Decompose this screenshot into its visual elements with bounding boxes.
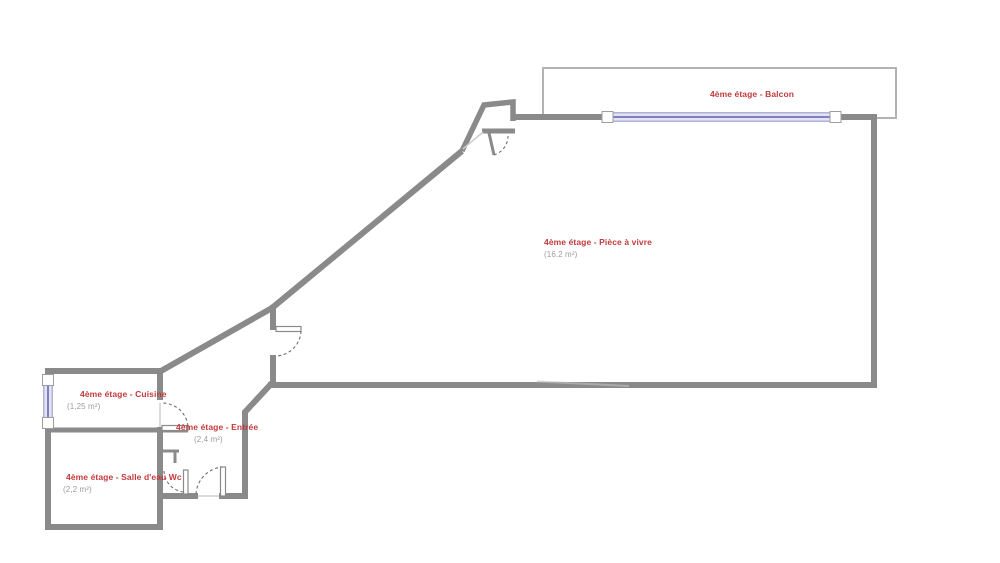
room-area: (16.2 m²) — [544, 250, 652, 259]
window-jamb-right — [830, 112, 841, 123]
wall-diagonal — [161, 151, 462, 371]
room-area: (2,4 m²) — [194, 435, 258, 444]
floorplan-canvas: 4ème étage - Balcon 4ème étage - Pièce à… — [0, 0, 1000, 563]
door-panel — [221, 467, 226, 496]
room-area: (1,25 m²) — [67, 402, 167, 411]
door-panel — [489, 133, 494, 155]
room-label-piece-a-vivre[interactable]: 4ème étage - Pièce à vivre (16.2 m²) — [544, 238, 652, 259]
room-area: (2,2 m²) — [63, 485, 182, 494]
door-swing-arc — [276, 331, 301, 356]
balcony-window[interactable] — [602, 112, 841, 123]
door-swing-arc — [196, 467, 222, 494]
room-name: 4ème étage - Cuisine — [80, 389, 167, 399]
room-name: 4ème étage - Entrée — [176, 422, 258, 432]
window-jamb-left — [602, 112, 613, 123]
kitchen-window[interactable] — [43, 375, 54, 429]
door-panel — [276, 327, 301, 332]
room-label-cuisine[interactable]: 4ème étage - Cuisine (1,25 m²) — [80, 390, 167, 411]
door-panel — [184, 470, 189, 494]
living-room-door[interactable] — [276, 327, 301, 357]
window-jamb-bottom — [43, 418, 54, 429]
room-label-entree[interactable]: 4ème étage - Entrée (2,4 m²) — [176, 423, 258, 444]
window-jamb-top — [43, 375, 54, 386]
closet-door[interactable] — [489, 133, 508, 155]
room-label-balcon[interactable]: 4ème étage - Balcon — [710, 90, 794, 100]
walls — [45, 102, 874, 530]
room-label-salle-deau[interactable]: 4ème étage - Salle d'eau Wc (2,2 m²) — [66, 473, 182, 494]
door-swing-arc — [494, 136, 508, 155]
room-name: 4ème étage - Balcon — [710, 89, 794, 99]
room-name: 4ème étage - Salle d'eau Wc — [66, 472, 182, 482]
room-name: 4ème étage - Pièce à vivre — [544, 237, 652, 247]
entrance-door[interactable] — [196, 467, 226, 496]
